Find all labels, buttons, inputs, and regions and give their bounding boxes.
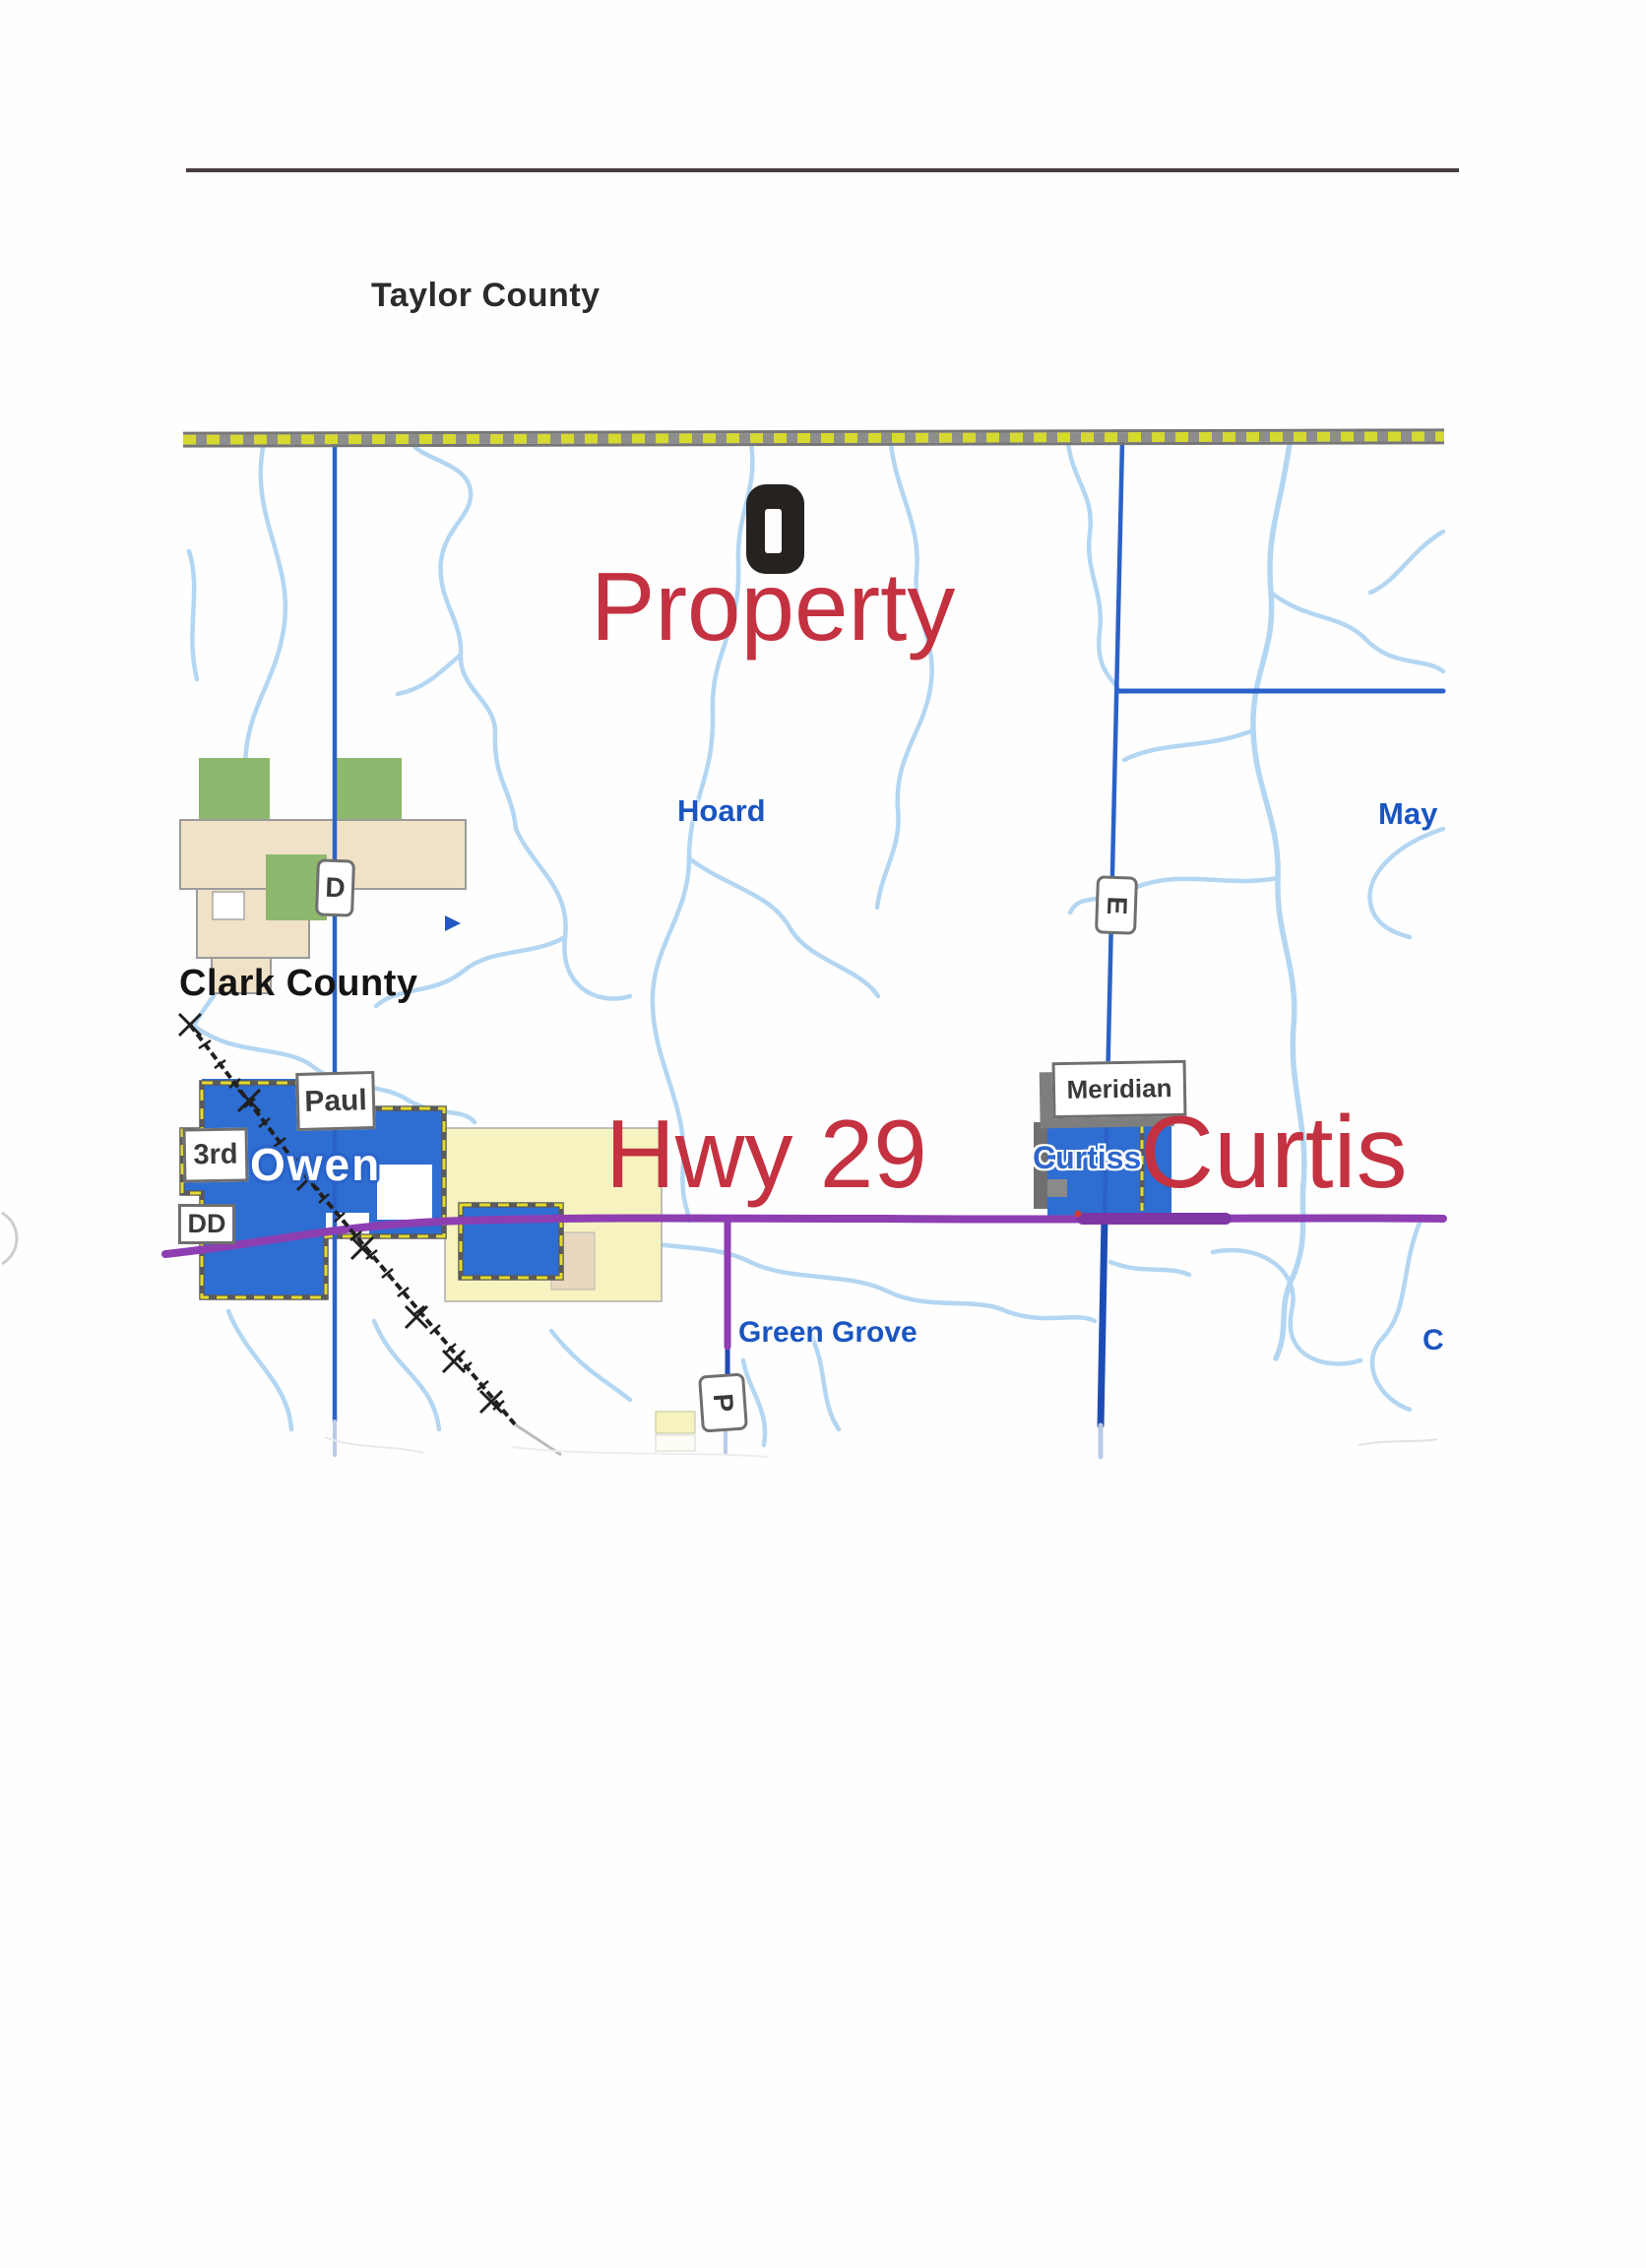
annotation-hwy-29: Hwy 29 — [605, 1099, 927, 1210]
highway-shield-e: E — [1095, 875, 1138, 934]
highway-shield-d: D — [315, 858, 355, 916]
town-label-partial: C — [1423, 1324, 1444, 1357]
landing-symbol — [445, 915, 461, 931]
town-label-hoard: Hoard — [677, 793, 766, 829]
town-label-curtiss: Curtiss — [1033, 1140, 1141, 1176]
county-road-e-south — [1101, 1218, 1105, 1425]
county-boundary-dashed — [183, 428, 1444, 447]
city-label-owen: Owen — [250, 1138, 381, 1191]
forest-patch — [333, 758, 402, 823]
forest-patch — [199, 758, 270, 825]
land-notch — [213, 892, 244, 919]
street-box-3rd: 3rd — [183, 1127, 249, 1182]
property-marker-slot — [765, 509, 782, 553]
highway-shield-d-letter: D — [325, 872, 346, 905]
street-box-dd: DD — [178, 1204, 235, 1244]
highway-shield-e-letter: E — [1101, 896, 1133, 915]
highway-shield-p: P — [698, 1372, 748, 1432]
town-label-green-grove: Green Grove — [738, 1316, 918, 1350]
scan-red-speck — [1075, 1211, 1082, 1218]
town-label-may: May — [1378, 796, 1437, 832]
town-area-small — [656, 1435, 695, 1451]
page-top-rule — [186, 168, 1459, 172]
highway-shield-p-letter: P — [707, 1393, 739, 1414]
page-title: Taylor County — [371, 277, 601, 315]
annotation-curtis: Curtis — [1140, 1095, 1408, 1212]
clark-county-label: Clark County — [179, 963, 417, 1005]
annotation-property: Property — [591, 551, 955, 662]
street-box-paul: Paul — [295, 1071, 376, 1131]
town-area-small — [656, 1412, 695, 1433]
scanned-map-page: Taylor County Clark County Property Hwy … — [0, 0, 1646, 2268]
